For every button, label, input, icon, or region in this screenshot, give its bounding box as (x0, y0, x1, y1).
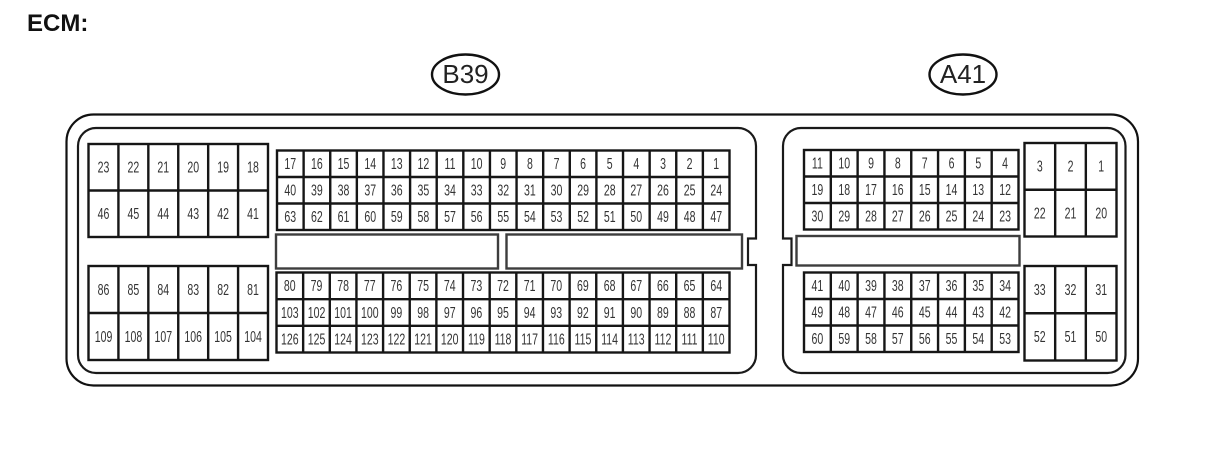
svg-text:46: 46 (98, 205, 110, 223)
svg-text:24: 24 (972, 207, 984, 225)
svg-text:67: 67 (630, 277, 642, 295)
svg-text:39: 39 (865, 277, 877, 295)
svg-text:A41: A41 (940, 59, 986, 89)
svg-text:120: 120 (441, 330, 459, 348)
svg-text:108: 108 (125, 328, 143, 346)
svg-text:110: 110 (708, 330, 725, 348)
svg-text:10: 10 (838, 154, 850, 172)
svg-text:49: 49 (657, 208, 669, 226)
svg-text:123: 123 (361, 330, 379, 348)
svg-text:74: 74 (444, 277, 456, 295)
svg-text:58: 58 (418, 208, 430, 226)
svg-text:46: 46 (892, 303, 904, 321)
svg-text:114: 114 (601, 330, 618, 348)
svg-text:117: 117 (521, 330, 538, 348)
svg-text:19: 19 (812, 181, 824, 199)
svg-text:104: 104 (244, 328, 262, 346)
svg-text:26: 26 (919, 207, 931, 225)
svg-text:12: 12 (418, 155, 430, 173)
svg-text:59: 59 (391, 208, 403, 226)
svg-text:56: 56 (471, 208, 483, 226)
svg-text:84: 84 (157, 281, 169, 299)
svg-text:25: 25 (684, 181, 696, 199)
svg-text:20: 20 (187, 158, 199, 176)
svg-text:31: 31 (1095, 281, 1107, 299)
svg-text:92: 92 (577, 304, 589, 322)
svg-text:4: 4 (1002, 154, 1008, 172)
svg-text:38: 38 (892, 277, 904, 295)
svg-text:32: 32 (497, 181, 509, 199)
svg-text:60: 60 (812, 330, 824, 348)
svg-text:124: 124 (334, 330, 352, 348)
svg-text:3: 3 (1037, 158, 1043, 176)
svg-text:54: 54 (524, 208, 536, 226)
svg-text:56: 56 (919, 330, 931, 348)
svg-text:64: 64 (710, 277, 722, 295)
svg-text:21: 21 (1065, 204, 1077, 222)
svg-text:48: 48 (838, 303, 850, 321)
svg-text:96: 96 (471, 304, 483, 322)
svg-text:4: 4 (633, 155, 639, 173)
svg-text:68: 68 (604, 277, 616, 295)
svg-text:100: 100 (361, 304, 379, 322)
svg-text:118: 118 (495, 330, 512, 348)
svg-text:22: 22 (128, 158, 140, 176)
svg-text:47: 47 (865, 303, 877, 321)
svg-text:58: 58 (865, 330, 877, 348)
svg-text:70: 70 (550, 277, 562, 295)
svg-text:14: 14 (946, 181, 958, 199)
svg-text:1: 1 (1098, 158, 1104, 176)
svg-text:40: 40 (284, 181, 296, 199)
svg-text:10: 10 (471, 155, 483, 173)
svg-text:63: 63 (284, 208, 296, 226)
svg-text:115: 115 (574, 330, 591, 348)
svg-text:83: 83 (187, 281, 199, 299)
svg-text:14: 14 (364, 155, 376, 173)
svg-text:31: 31 (524, 181, 536, 199)
svg-text:60: 60 (364, 208, 376, 226)
svg-text:51: 51 (604, 208, 616, 226)
svg-text:78: 78 (337, 277, 349, 295)
svg-text:80: 80 (284, 277, 296, 295)
svg-text:86: 86 (98, 281, 110, 299)
svg-text:21: 21 (157, 158, 169, 176)
svg-text:59: 59 (838, 330, 850, 348)
svg-text:90: 90 (630, 304, 642, 322)
svg-text:8: 8 (527, 155, 533, 173)
svg-text:3: 3 (660, 155, 666, 173)
svg-text:15: 15 (919, 181, 931, 199)
svg-text:35: 35 (418, 181, 430, 199)
svg-text:48: 48 (684, 208, 696, 226)
svg-text:18: 18 (838, 181, 850, 199)
svg-text:53: 53 (999, 330, 1011, 348)
svg-text:54: 54 (972, 330, 984, 348)
svg-text:103: 103 (281, 304, 299, 322)
svg-text:61: 61 (338, 208, 350, 226)
svg-text:34: 34 (444, 181, 456, 199)
svg-text:16: 16 (892, 181, 904, 199)
svg-text:87: 87 (710, 304, 722, 322)
svg-text:52: 52 (577, 208, 589, 226)
svg-text:33: 33 (471, 181, 483, 199)
svg-text:7: 7 (922, 154, 928, 172)
svg-text:12: 12 (999, 181, 1011, 199)
svg-text:55: 55 (497, 208, 509, 226)
svg-text:33: 33 (1034, 281, 1046, 299)
svg-text:5: 5 (607, 155, 613, 173)
svg-text:50: 50 (1095, 328, 1107, 346)
svg-text:29: 29 (577, 181, 589, 199)
svg-text:40: 40 (838, 277, 850, 295)
svg-text:15: 15 (338, 155, 350, 173)
svg-text:9: 9 (868, 154, 874, 172)
svg-text:125: 125 (308, 330, 326, 348)
svg-text:97: 97 (444, 304, 456, 322)
svg-text:53: 53 (551, 208, 563, 226)
svg-text:85: 85 (128, 281, 140, 299)
svg-text:16: 16 (311, 155, 323, 173)
svg-text:62: 62 (311, 208, 323, 226)
svg-text:57: 57 (444, 208, 456, 226)
svg-text:27: 27 (892, 207, 904, 225)
svg-text:22: 22 (1034, 204, 1046, 222)
svg-text:28: 28 (604, 181, 616, 199)
svg-text:32: 32 (1065, 281, 1077, 299)
svg-text:26: 26 (657, 181, 669, 199)
svg-text:41: 41 (812, 277, 824, 295)
svg-text:89: 89 (657, 304, 669, 322)
svg-text:44: 44 (157, 205, 169, 223)
svg-text:29: 29 (838, 207, 850, 225)
svg-text:43: 43 (972, 303, 984, 321)
svg-text:45: 45 (919, 303, 931, 321)
svg-text:82: 82 (217, 281, 229, 299)
svg-text:121: 121 (414, 330, 432, 348)
svg-text:47: 47 (710, 208, 722, 226)
svg-text:76: 76 (391, 277, 403, 295)
svg-text:72: 72 (497, 277, 509, 295)
svg-text:11: 11 (445, 155, 456, 173)
svg-text:101: 101 (334, 304, 352, 322)
svg-text:66: 66 (657, 277, 669, 295)
svg-text:1: 1 (713, 155, 719, 173)
svg-text:18: 18 (247, 158, 259, 176)
svg-text:11: 11 (812, 154, 823, 172)
svg-text:102: 102 (308, 304, 326, 322)
svg-text:69: 69 (577, 277, 589, 295)
svg-text:7: 7 (554, 155, 560, 173)
svg-text:13: 13 (972, 181, 984, 199)
svg-text:19: 19 (217, 158, 229, 176)
svg-text:49: 49 (812, 303, 824, 321)
svg-text:44: 44 (946, 303, 958, 321)
svg-text:52: 52 (1034, 328, 1046, 346)
svg-text:57: 57 (892, 330, 904, 348)
svg-text:81: 81 (247, 281, 259, 299)
svg-text:42: 42 (999, 303, 1011, 321)
svg-text:6: 6 (949, 154, 955, 172)
svg-text:35: 35 (972, 277, 984, 295)
svg-text:122: 122 (388, 330, 406, 348)
svg-text:36: 36 (391, 181, 403, 199)
svg-text:95: 95 (497, 304, 509, 322)
svg-text:25: 25 (946, 207, 958, 225)
svg-text:30: 30 (551, 181, 563, 199)
svg-text:91: 91 (604, 304, 616, 322)
svg-text:37: 37 (919, 277, 931, 295)
svg-text:17: 17 (865, 181, 877, 199)
svg-text:24: 24 (710, 181, 722, 199)
svg-text:112: 112 (654, 330, 671, 348)
svg-text:111: 111 (681, 330, 697, 348)
svg-text:51: 51 (1065, 328, 1077, 346)
svg-text:13: 13 (391, 155, 403, 173)
svg-text:23: 23 (999, 207, 1011, 225)
svg-text:38: 38 (338, 181, 350, 199)
svg-text:126: 126 (281, 330, 299, 348)
svg-text:41: 41 (247, 205, 259, 223)
svg-text:34: 34 (999, 277, 1011, 295)
svg-text:23: 23 (98, 158, 110, 176)
svg-text:45: 45 (128, 205, 140, 223)
svg-text:106: 106 (184, 328, 202, 346)
svg-text:55: 55 (946, 330, 958, 348)
svg-text:5: 5 (975, 154, 981, 172)
svg-text:99: 99 (391, 304, 403, 322)
svg-text:30: 30 (812, 207, 824, 225)
svg-text:43: 43 (187, 205, 199, 223)
svg-text:6: 6 (580, 155, 586, 173)
svg-text:9: 9 (500, 155, 506, 173)
svg-text:50: 50 (630, 208, 642, 226)
svg-text:42: 42 (217, 205, 229, 223)
svg-text:39: 39 (311, 181, 323, 199)
svg-text:109: 109 (95, 328, 113, 346)
svg-text:B39: B39 (442, 59, 488, 89)
svg-text:116: 116 (548, 330, 565, 348)
svg-text:94: 94 (524, 304, 536, 322)
svg-text:119: 119 (468, 330, 485, 348)
svg-text:107: 107 (154, 328, 172, 346)
svg-text:77: 77 (364, 277, 376, 295)
svg-text:20: 20 (1095, 204, 1107, 222)
svg-text:73: 73 (471, 277, 483, 295)
svg-text:27: 27 (630, 181, 642, 199)
svg-text:65: 65 (684, 277, 696, 295)
svg-text:28: 28 (865, 207, 877, 225)
svg-text:8: 8 (895, 154, 901, 172)
svg-text:71: 71 (524, 277, 536, 295)
svg-text:17: 17 (284, 155, 296, 173)
svg-text:93: 93 (550, 304, 562, 322)
svg-text:2: 2 (1068, 158, 1074, 176)
svg-text:2: 2 (687, 155, 693, 173)
svg-text:75: 75 (417, 277, 429, 295)
svg-text:36: 36 (946, 277, 958, 295)
svg-text:79: 79 (311, 277, 323, 295)
svg-text:37: 37 (364, 181, 376, 199)
svg-text:88: 88 (684, 304, 696, 322)
svg-text:105: 105 (214, 328, 232, 346)
svg-text:113: 113 (628, 330, 645, 348)
svg-text:98: 98 (417, 304, 429, 322)
